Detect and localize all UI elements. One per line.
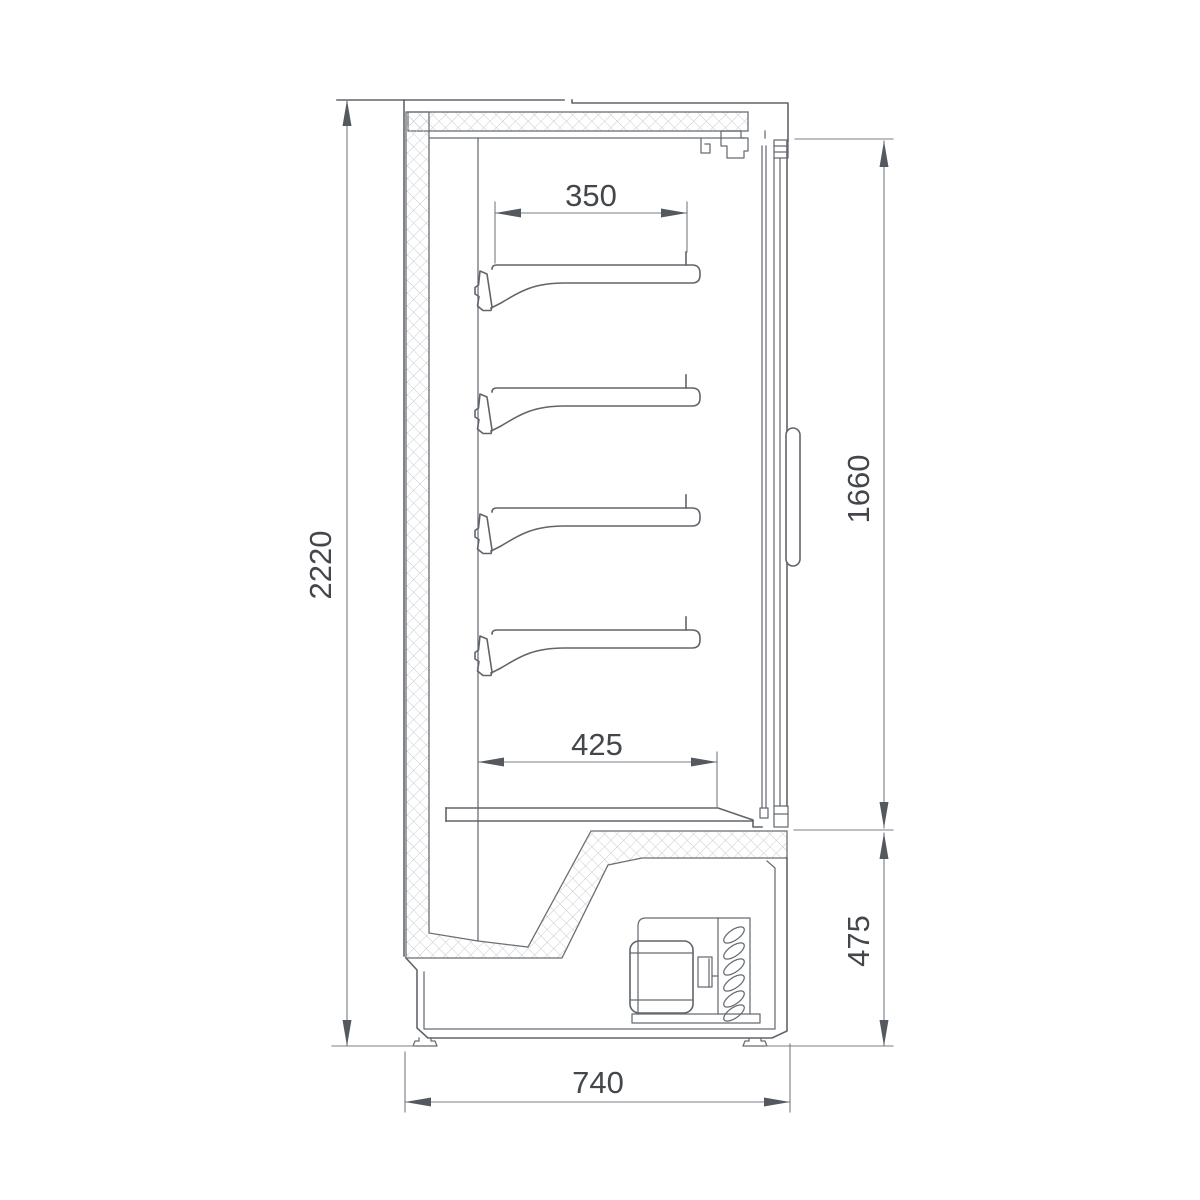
arrow-up-icon [880,141,889,167]
door-sill-step [760,808,768,818]
condenser-coil [721,924,747,1024]
shelf-1 [475,252,700,311]
cabinet-section-drawing: 2220 350 1660 425 [0,0,1200,1200]
dimension-shelf-depth: 350 [495,178,687,263]
arrow-left-icon [405,1098,431,1107]
leveling-feet [413,1038,767,1046]
arrow-right-icon [691,758,717,767]
dim-label-475: 475 [841,915,876,967]
top-insulation-slab [408,112,748,131]
dimension-door-height: 1660 [794,139,893,830]
arrow-right-icon [661,209,687,218]
dim-label-1660: 1660 [841,455,876,524]
glass-door [760,140,800,827]
dimension-overall-depth: 740 [405,1044,790,1112]
insulation-hatch [406,112,787,958]
arrow-left-icon [495,209,521,218]
door-frame-hardware [701,131,765,158]
cabinet-body [337,100,800,1046]
door-top-rail [774,140,788,158]
dim-label-425: 425 [571,727,623,762]
shelf-2 [475,375,700,434]
back-and-bottom-insulation [406,112,787,958]
outer-shell [337,100,788,956]
arrow-down-icon [343,1020,352,1046]
dimension-overall-height: 2220 [303,100,414,1046]
dimension-annotations: 2220 350 1660 425 [303,100,893,1112]
door-bottom-rail [774,806,788,827]
door-handle [786,428,800,566]
dim-label-2220: 2220 [303,531,338,600]
arrow-up-icon [880,833,889,859]
frame-hook [701,138,710,153]
unit-base-plate [632,1014,760,1023]
arrow-up-icon [343,100,352,126]
shelves [475,252,700,676]
relay-box [698,957,712,987]
shelf-4 [475,617,700,676]
dimension-bottom-shelf-depth: 425 [478,727,717,808]
arrow-down-icon [880,1020,889,1046]
foot-right [743,1038,767,1046]
shelf-3 [475,495,700,554]
condensing-unit [630,918,760,1024]
cabinet-floor [446,808,762,827]
technical-drawing-page: 2220 350 1660 425 [0,0,1200,1200]
compressor [630,941,693,1013]
arrow-right-icon [764,1098,790,1107]
dim-label-740: 740 [572,1065,624,1100]
dimension-base-height: 475 [766,833,893,1046]
foot-left [413,1038,437,1046]
hinge-block [721,131,748,158]
dim-label-350: 350 [565,178,617,213]
arrow-down-icon [880,802,889,828]
arrow-left-icon [478,758,504,767]
